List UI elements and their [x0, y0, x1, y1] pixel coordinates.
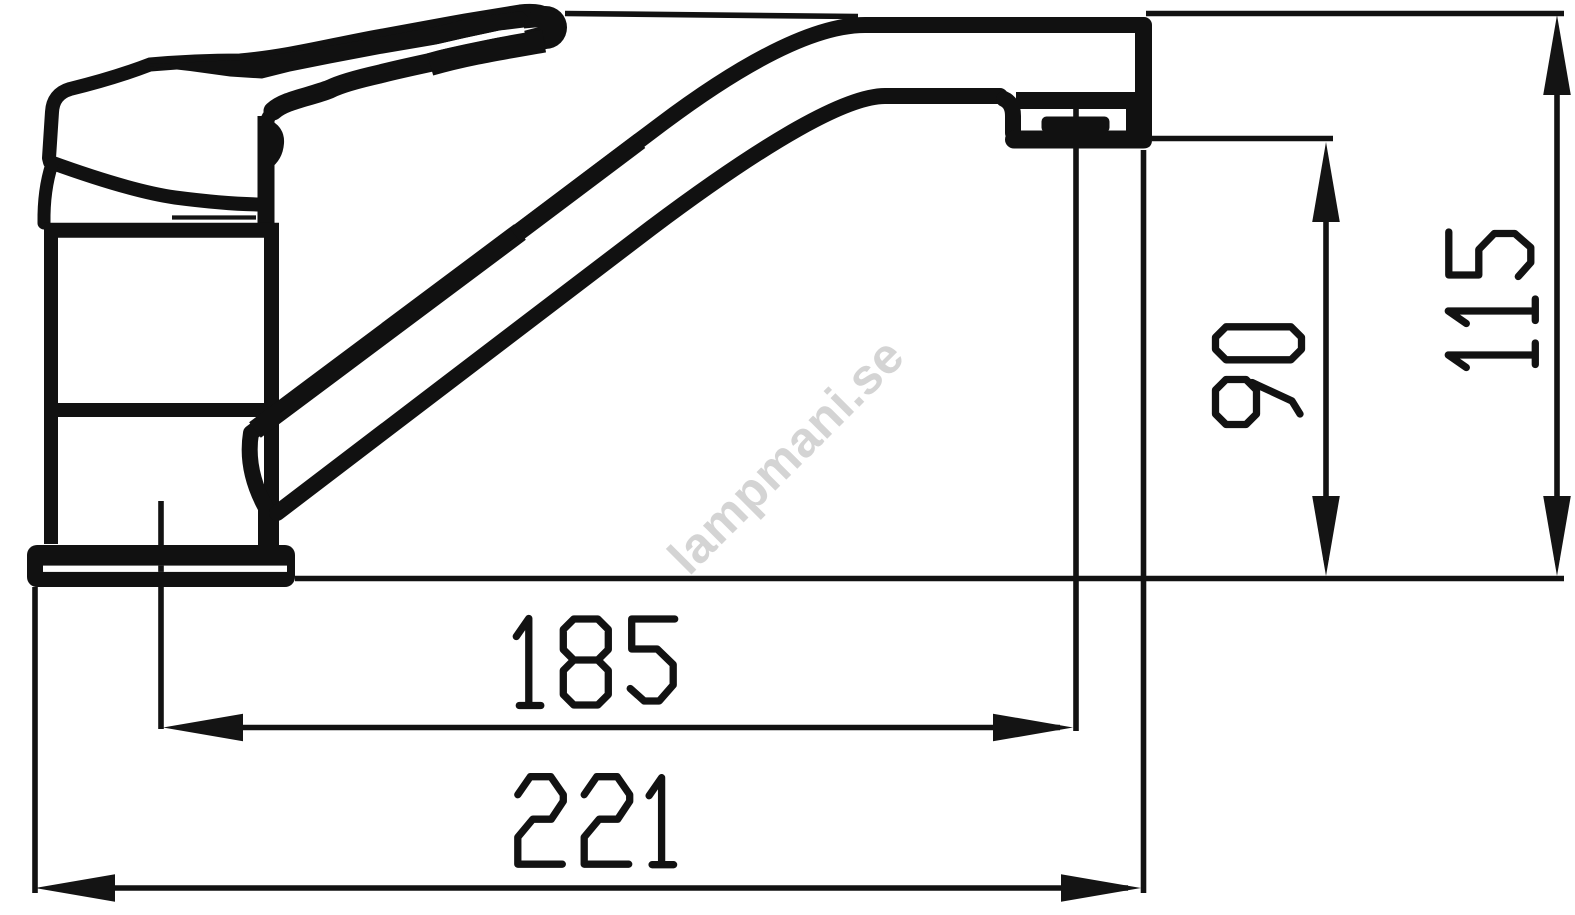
- svg-text:lampmani.se: lampmani.se: [657, 327, 915, 585]
